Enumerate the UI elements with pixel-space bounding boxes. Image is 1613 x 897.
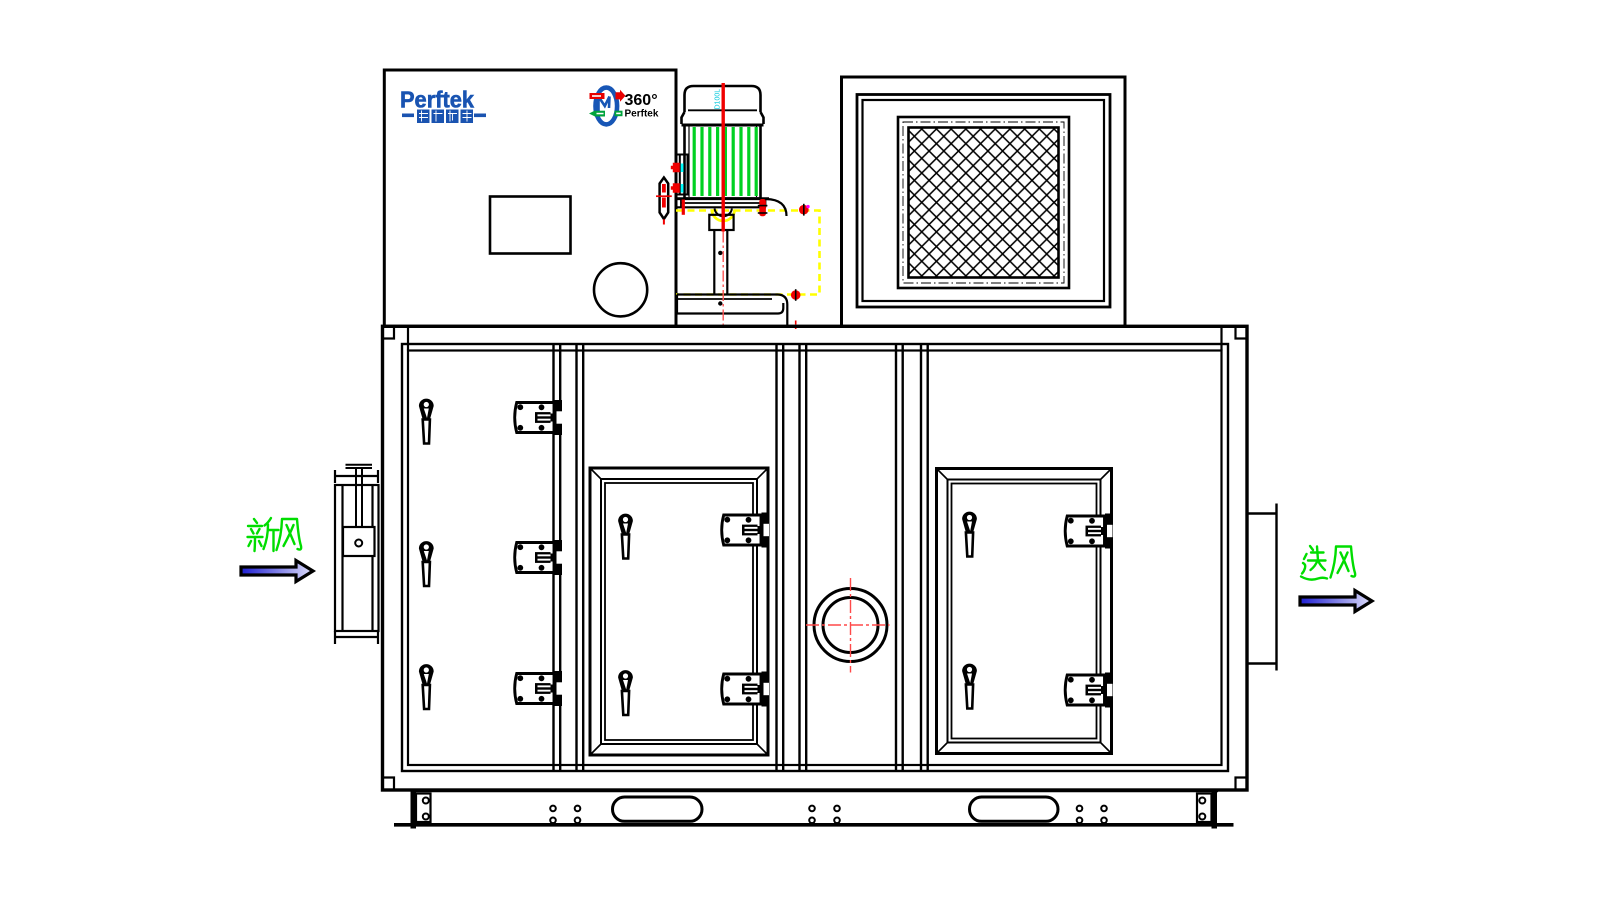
svg-text:360°: 360° xyxy=(625,92,658,109)
svg-text:Perftek: Perftek xyxy=(625,109,659,120)
svg-text:Perftek: Perftek xyxy=(400,87,474,113)
svg-text:D100L: D100L xyxy=(715,89,722,110)
